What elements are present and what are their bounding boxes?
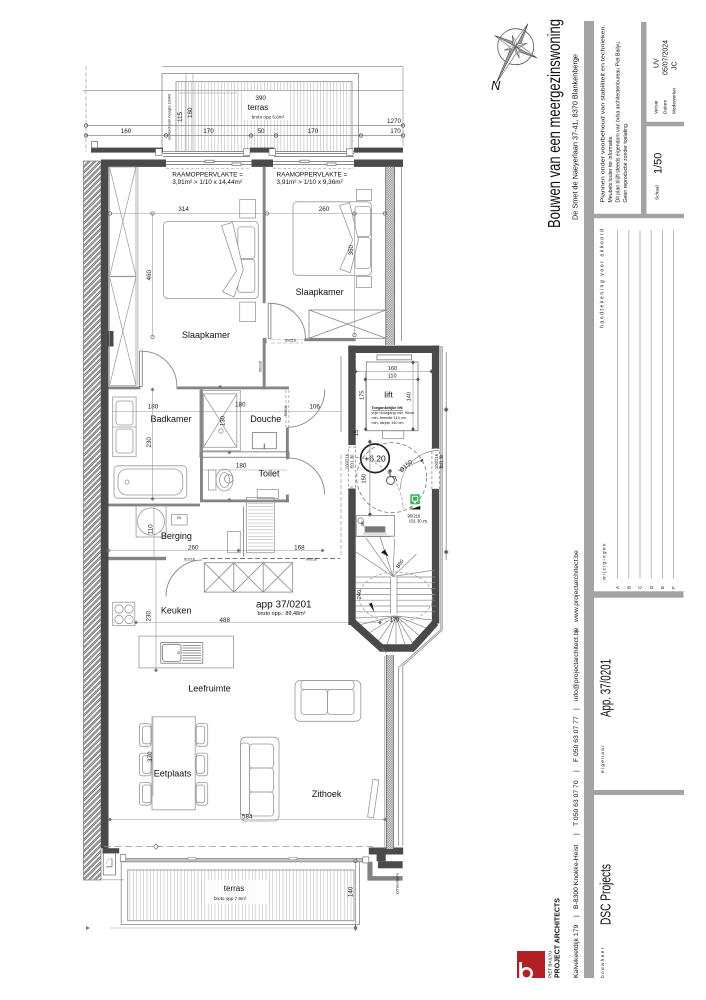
svg-text:Versie: Versie — [654, 100, 660, 114]
svg-text:wijzigingen: wijzigingen — [602, 542, 608, 580]
svg-text:Eetplaats: Eetplaats — [154, 769, 192, 779]
svg-text:3,91m² > 1/10 x 14,44m²: 3,91m² > 1/10 x 14,44m² — [172, 179, 242, 186]
svg-text:zichtscherm hoogte 1m80: zichtscherm hoogte 1m80 — [167, 93, 172, 140]
svg-text:C: C — [638, 585, 643, 589]
svg-text:min. diepte 140 cm: min. diepte 140 cm — [372, 421, 404, 425]
svg-text:Badkamer: Badkamer — [150, 414, 191, 424]
svg-text:terras: terras — [224, 884, 244, 893]
svg-text:eigenaar: eigenaar — [600, 744, 606, 773]
svg-text:ID1 30 zs.: ID1 30 zs. — [409, 519, 428, 524]
svg-text:www.projectarchitect.be: www.projectarchitect.be — [573, 550, 580, 623]
svg-text:DSC Projects: DSC Projects — [599, 864, 615, 925]
svg-text:180: 180 — [236, 462, 247, 469]
svg-text:|: | — [573, 708, 580, 710]
svg-text:1/50: 1/50 — [653, 153, 665, 174]
svg-text:584: 584 — [242, 814, 253, 821]
svg-text:314: 314 — [178, 206, 189, 213]
svg-text:Datum: Datum — [663, 100, 669, 114]
svg-text:40: 40 — [360, 521, 365, 527]
svg-text:min. breedte 110 cm: min. breedte 110 cm — [372, 416, 406, 420]
svg-text:terras: terras — [248, 103, 268, 112]
svg-text:180: 180 — [148, 404, 159, 411]
svg-text:160: 160 — [388, 366, 397, 372]
svg-text:05/07/2024: 05/07/2024 — [663, 40, 670, 75]
svg-text:110: 110 — [147, 524, 154, 535]
svg-text:RAAMOPPERVLAKTE =: RAAMOPPERVLAKTE = — [172, 172, 243, 179]
svg-text:140: 140 — [348, 886, 355, 897]
svg-text:230: 230 — [146, 437, 153, 448]
svg-text:50: 50 — [257, 128, 265, 135]
svg-text:N: N — [491, 78, 501, 93]
svg-text:Medewerker: Medewerker — [672, 87, 678, 114]
svg-text:170: 170 — [390, 618, 399, 624]
svg-text:Slaapkamer: Slaapkamer — [182, 330, 230, 340]
svg-text:180: 180 — [235, 402, 246, 409]
svg-text:370: 370 — [147, 751, 154, 762]
svg-text:F 050 63 07 77: F 050 63 07 77 — [573, 716, 580, 762]
svg-text:168: 168 — [294, 545, 305, 552]
svg-text:B60: B60 — [395, 559, 405, 570]
svg-text:15: 15 — [354, 430, 360, 436]
svg-text:140: 140 — [407, 392, 413, 401]
svg-text:Toegankelijke lift:: Toegankelijke lift: — [372, 406, 404, 410]
svg-text:PIET BAILYU: PIET BAILYU — [548, 951, 553, 978]
svg-text:A: A — [615, 585, 620, 589]
svg-text:D: D — [649, 585, 654, 589]
svg-text:Leefruimte: Leefruimte — [188, 684, 231, 694]
svg-text:110: 110 — [388, 374, 397, 380]
svg-text:|: | — [573, 630, 580, 632]
svg-text:F: F — [671, 586, 676, 589]
svg-text:130: 130 — [221, 415, 227, 426]
svg-text:handtekening voor akkoord: handtekening voor akkoord — [600, 228, 606, 328]
svg-text:160: 160 — [121, 128, 132, 135]
svg-text:ED1 30: ED1 30 — [349, 454, 354, 469]
svg-text:zichtscherm: zichtscherm — [395, 872, 400, 894]
svg-text:B-8300 Knokke-Heist: B-8300 Knokke-Heist — [573, 845, 580, 909]
svg-text:Plannen onder voorbehoud van s: Plannen onder voorbehoud van stabiliteit… — [601, 25, 607, 203]
svg-text:460: 460 — [146, 270, 153, 281]
svg-text:RAAMOPPERVLAKTE =: RAAMOPPERVLAKTE = — [277, 172, 348, 179]
svg-text:260: 260 — [319, 206, 330, 213]
svg-text:Ø150: Ø150 — [398, 458, 414, 474]
svg-text:170: 170 — [203, 128, 214, 135]
svg-text:lift: lift — [384, 390, 393, 400]
svg-text:|: | — [573, 770, 580, 772]
svg-text:|: | — [573, 833, 580, 835]
svg-text:PROJECT ARCHITECTS: PROJECT ARCHITECTS — [555, 898, 562, 978]
svg-text:90/216: 90/216 — [306, 557, 317, 561]
svg-text:3,91m² > 1/10 x 9,36m²: 3,91m² > 1/10 x 9,36m² — [277, 179, 343, 186]
svg-text:bruto opp 7,8m²: bruto opp 7,8m² — [214, 896, 247, 901]
svg-text:App. 37/0201: App. 37/0201 — [599, 659, 615, 717]
svg-text:Geen reproductie zonder toelat: Geen reproductie zonder toelating. — [623, 123, 629, 203]
svg-text:390: 390 — [255, 95, 266, 102]
svg-text:info@projectarchitect.be: info@projectarchitect.be — [573, 627, 580, 701]
svg-text:T 050 63 07 70: T 050 63 07 70 — [573, 780, 580, 826]
svg-text:Meubels louter ter informatie.: Meubels louter ter informatie. — [608, 135, 614, 202]
svg-text:150: 150 — [362, 474, 368, 484]
svg-text:240: 240 — [357, 590, 363, 599]
svg-text:E: E — [660, 586, 665, 589]
svg-text:170: 170 — [308, 128, 319, 135]
svg-text:JC: JC — [672, 61, 679, 70]
svg-text:bouwheer: bouwheer — [600, 947, 606, 978]
svg-text:175: 175 — [360, 391, 366, 400]
svg-text:UV: UV — [654, 58, 661, 68]
svg-text:bruto opp.: 89,48m²: bruto opp.: 89,48m² — [258, 611, 306, 617]
svg-text:170: 170 — [390, 128, 401, 135]
svg-text:+6.20: +6.20 — [364, 453, 386, 463]
svg-text:106: 106 — [309, 404, 320, 411]
svg-text:488: 488 — [219, 617, 230, 624]
svg-text:1270: 1270 — [387, 118, 402, 125]
svg-text:B: B — [626, 586, 631, 589]
svg-text:360: 360 — [348, 244, 355, 255]
svg-text:Keuken: Keuken — [161, 606, 192, 616]
svg-text:115: 115 — [177, 111, 184, 122]
svg-text:app 37/0201: app 37/0201 — [256, 600, 312, 611]
svg-text:260: 260 — [188, 545, 199, 552]
svg-text:Bouwen van een meergezinswonin: Bouwen van een meergezinswoning — [544, 19, 564, 228]
svg-text:230: 230 — [146, 610, 153, 621]
svg-text:Dit plan blijft steeds eigendo: Dit plan blijft steeds eigendom van bvba… — [616, 40, 622, 202]
svg-text:90/216: 90/216 — [285, 339, 296, 343]
svg-text:90/216: 90/216 — [259, 361, 263, 372]
svg-text:bruto opp 6,6m²: bruto opp 6,6m² — [252, 115, 285, 120]
svg-text:Berging: Berging — [161, 531, 192, 541]
svg-text:95/208: 95/208 — [284, 406, 288, 416]
svg-text:vrije doorgang min. 90cm: vrije doorgang min. 90cm — [372, 411, 415, 415]
svg-text:De Smet de Naeyerlaan 37-41, 8: De Smet de Naeyerlaan 37-41, 8370 Blanke… — [571, 54, 580, 220]
svg-text:Zithoek: Zithoek — [312, 789, 342, 799]
svg-text:Kalvekeetdijk 179: Kalvekeetdijk 179 — [573, 925, 580, 978]
svg-text:Douche: Douche — [250, 414, 281, 424]
svg-text:Schaal: Schaal — [655, 185, 661, 200]
svg-text:|: | — [573, 915, 580, 917]
svg-text:cv: cv — [177, 515, 182, 520]
svg-text:Slaapkamer: Slaapkamer — [296, 287, 344, 297]
